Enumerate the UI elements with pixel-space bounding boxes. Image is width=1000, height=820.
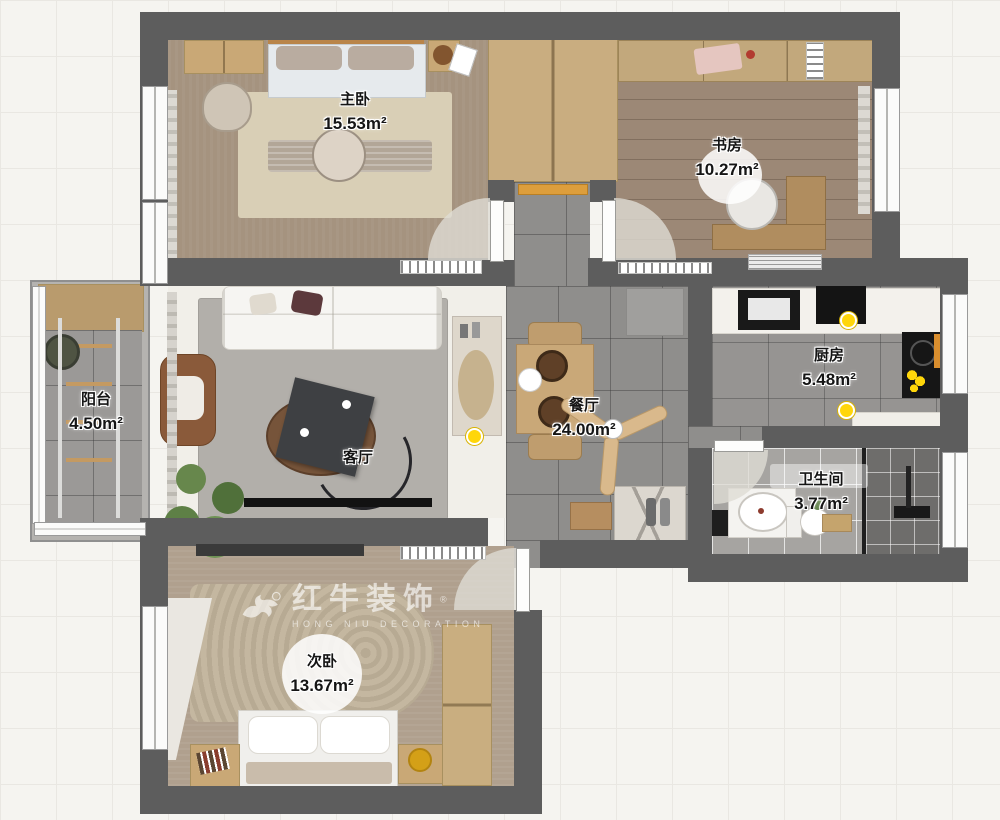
hall-stool <box>570 502 612 530</box>
master-dresser <box>184 40 264 74</box>
dried-plant-deco <box>458 350 494 420</box>
second-bedroom-name: 次卧 <box>290 650 353 671</box>
bedroom2-lamp <box>408 748 432 772</box>
bathroom-wood-box <box>822 514 852 532</box>
light-dot-living <box>466 428 483 445</box>
master-curtain <box>167 90 177 286</box>
bathroom-name: 卫生间 <box>794 468 848 489</box>
balcony-cabinet <box>38 284 144 332</box>
master-window-1 <box>142 86 168 200</box>
bedroom2-radiator <box>400 546 486 560</box>
entry-hall-floor <box>514 182 590 286</box>
kitchen-area: 5.48m² <box>802 370 856 390</box>
wall-living-bottom <box>140 518 488 546</box>
study-name: 书房 <box>695 134 758 155</box>
wall-bedroom2-right <box>514 610 542 814</box>
entry-doormat <box>626 288 684 336</box>
balcony-area: 4.50m² <box>69 414 123 434</box>
master-door-leaf <box>490 200 504 262</box>
wall-hall-right-upper <box>590 180 616 202</box>
drying-rack-rung-4 <box>66 458 112 462</box>
watermark-registered: ® <box>440 595 447 605</box>
wall-corridor-bottom <box>540 540 712 568</box>
study-radiator <box>618 262 712 274</box>
second-bedroom-area: 13.67m² <box>290 676 353 696</box>
study-area: 10.27m² <box>695 160 758 180</box>
coffee-table-cup-1 <box>300 428 309 437</box>
study-shelf-cabinet <box>618 40 874 82</box>
bathroom-area: 3.77m² <box>794 494 848 514</box>
coffee-table-cup-2 <box>342 400 351 409</box>
bedroom2-pillow-left <box>248 716 318 754</box>
study-deco-dot <box>746 50 755 59</box>
kitchen-window <box>942 294 968 394</box>
dining-plate <box>518 368 542 392</box>
study-window <box>874 88 900 212</box>
wall-hall-right-lower <box>590 260 616 286</box>
wall-top <box>140 12 900 40</box>
study-side-radiator <box>806 42 824 80</box>
watermark-subtitle: HONG NIU DECORATION <box>292 619 484 629</box>
balcony-window-bottom <box>34 522 146 536</box>
bedroom2-wall-shelf <box>196 544 364 556</box>
master-ottoman <box>312 128 366 182</box>
balcony-label: 阳台 4.50m² <box>69 388 123 434</box>
master-radiator <box>400 260 482 274</box>
kitchen-sink-basin <box>910 340 936 366</box>
drying-rack-rung-2 <box>66 382 112 386</box>
bathroom-sink-drain <box>758 508 764 514</box>
wall-kitchen-bath <box>762 426 940 448</box>
study-curtain <box>858 86 870 214</box>
master-bedroom-name: 主卧 <box>323 88 386 109</box>
watermark-text: 红牛装饰® HONG NIU DECORATION <box>292 585 484 629</box>
wall-hall-left-upper <box>488 180 514 202</box>
bathroom-label: 卫生间 3.77m² <box>794 468 848 514</box>
entry-threshold <box>518 184 588 195</box>
balcony-name: 阳台 <box>69 388 123 409</box>
shower-floor <box>866 448 940 554</box>
tv-console <box>244 498 432 507</box>
wall-corridor-left-upper <box>688 286 712 426</box>
shower-fixture <box>894 506 930 518</box>
kitchen-name: 厨房 <box>802 344 856 365</box>
master-bedroom-area: 15.53m² <box>323 114 386 134</box>
light-dot-kitchen-2 <box>838 402 855 419</box>
wall-hall-left-lower <box>488 260 514 286</box>
cabinet-bottle-1 <box>646 498 656 526</box>
balcony-plant-wreath <box>44 334 80 370</box>
shelf-bottle-1 <box>460 324 468 338</box>
kitchen-yellow-deco <box>906 368 926 392</box>
watermark-brand: 红牛装饰 <box>292 583 440 616</box>
shelf-bottle-2 <box>472 322 480 338</box>
dining-room-area: 24.00m² <box>552 420 615 440</box>
brand-watermark: 红牛装饰® HONG NIU DECORATION <box>238 585 484 629</box>
balcony-window-left <box>32 286 46 524</box>
light-dot-kitchen-1 <box>840 312 857 329</box>
master-pillow-right <box>348 46 414 70</box>
bedroom2-pillow-right <box>320 716 390 754</box>
bedroom2-wardrobe <box>442 624 492 786</box>
living-plant-foliage-3 <box>212 482 244 514</box>
master-chair <box>202 82 252 132</box>
living-room-label: 客厅 <box>343 446 373 467</box>
entry-wardrobe-cabinets <box>488 38 618 182</box>
cabinet-bottle-2 <box>660 498 670 526</box>
kitchen-label: 厨房 5.48m² <box>802 344 856 390</box>
bathroom-window <box>942 452 968 548</box>
wall-bedroom2-bottom <box>140 786 542 814</box>
bedroom2-bed-bench <box>246 762 392 784</box>
study-label: 书房 10.27m² <box>695 134 758 180</box>
floor-plan-canvas: 主卧 15.53m² 书房 10.27m² 阳台 4.50m² 客厅 餐厅 24… <box>0 0 1000 820</box>
living-room-name: 客厅 <box>343 446 373 467</box>
wall-bath-bottom <box>688 554 968 582</box>
bathroom-door-leaf <box>714 440 764 452</box>
wall-corridor-left-lower <box>688 448 712 554</box>
kitchen-orange-strip <box>934 334 940 368</box>
master-window-2 <box>142 202 168 284</box>
bedroom2-door-leaf <box>516 548 530 612</box>
living-plant-foliage-4 <box>176 464 206 494</box>
kitchen-cooktop-panel <box>748 298 790 320</box>
living-sofa-pillow-beige <box>249 292 278 315</box>
bedroom2-window <box>142 606 168 750</box>
bull-logo-icon <box>238 589 284 625</box>
master-bedroom-label: 主卧 15.53m² <box>323 88 386 134</box>
second-bedroom-label: 次卧 13.67m² <box>290 650 353 696</box>
study-door-leaf <box>602 200 616 262</box>
master-pillow-left <box>276 46 342 70</box>
study-ac-unit <box>748 254 822 270</box>
dining-room-name: 餐厅 <box>552 394 615 415</box>
shower-pole <box>906 466 911 508</box>
dining-room-label: 餐厅 24.00m² <box>552 394 615 440</box>
drying-rack-rail-left <box>58 318 62 518</box>
study-desk-horizontal <box>712 224 826 250</box>
